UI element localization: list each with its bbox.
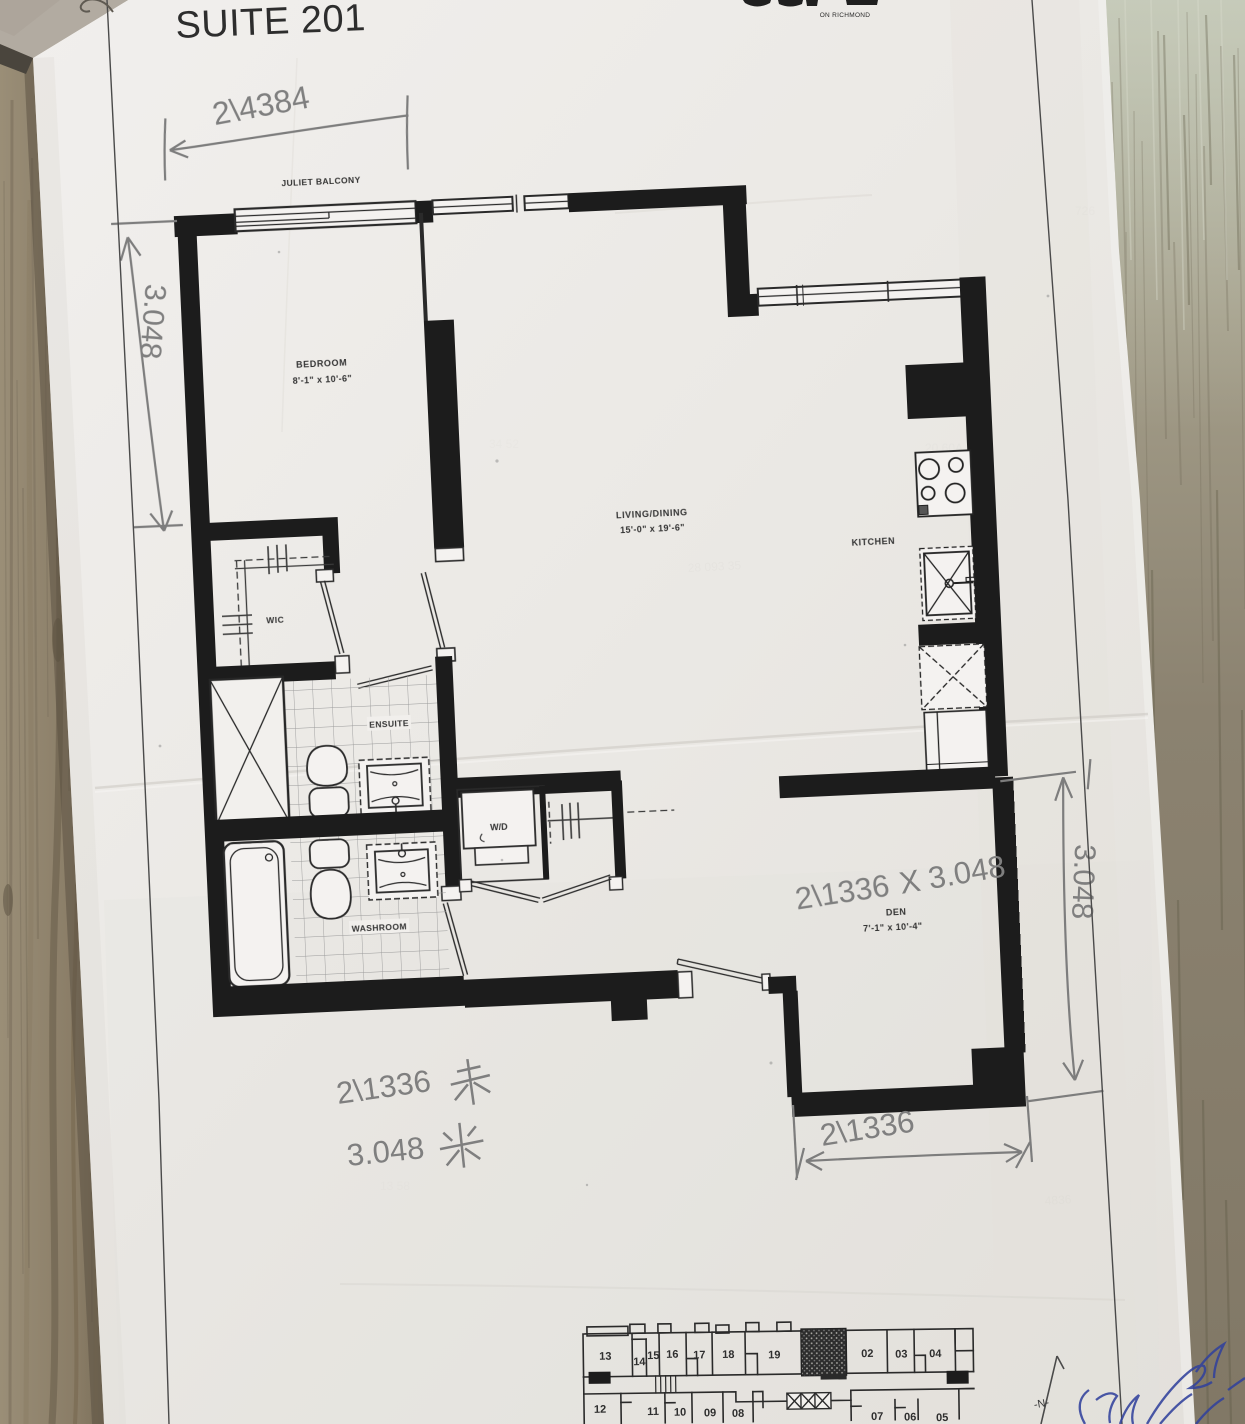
svg-text:02: 02 bbox=[861, 1348, 873, 1360]
svg-text:16: 16 bbox=[666, 1349, 678, 1361]
svg-text:W/D: W/D bbox=[490, 822, 508, 833]
svg-text:04: 04 bbox=[929, 1348, 942, 1360]
svg-text:17: 17 bbox=[693, 1349, 705, 1361]
svg-text:28 093 35: 28 093 35 bbox=[687, 558, 741, 575]
svg-text:ENSUITE: ENSUITE bbox=[369, 718, 409, 730]
svg-text:DEN: DEN bbox=[886, 907, 907, 918]
svg-text:WIC: WIC bbox=[266, 615, 284, 626]
svg-text:13: 13 bbox=[599, 1351, 611, 1363]
svg-text:3.048: 3.048 bbox=[133, 283, 172, 360]
svg-text:15: 15 bbox=[647, 1350, 659, 1362]
svg-text:08: 08 bbox=[732, 1408, 744, 1420]
svg-text:13 58: 13 58 bbox=[380, 1179, 410, 1193]
svg-text:07: 07 bbox=[871, 1411, 883, 1423]
svg-text:09: 09 bbox=[704, 1407, 716, 1419]
svg-text:14: 14 bbox=[633, 1356, 646, 1368]
svg-text:11: 11 bbox=[647, 1406, 659, 1418]
svg-text:SUITE 201: SUITE 201 bbox=[175, 0, 367, 47]
svg-text:05: 05 bbox=[936, 1412, 948, 1424]
svg-text:ON RICHMOND: ON RICHMOND bbox=[820, 12, 871, 19]
svg-text:19: 19 bbox=[768, 1349, 780, 1361]
svg-text:03: 03 bbox=[895, 1348, 907, 1360]
svg-text:4836: 4836 bbox=[1044, 1192, 1072, 1208]
svg-text:18: 18 bbox=[722, 1349, 734, 1361]
svg-text:06: 06 bbox=[904, 1411, 916, 1423]
svg-text:12: 12 bbox=[594, 1404, 606, 1416]
svg-text:3.048: 3.048 bbox=[1065, 844, 1101, 920]
svg-text:10: 10 bbox=[674, 1407, 686, 1419]
svg-text:726: 726 bbox=[1075, 204, 1095, 218]
svg-text:KITCHEN: KITCHEN bbox=[851, 536, 895, 548]
svg-text:34 52: 34 52 bbox=[489, 437, 519, 451]
